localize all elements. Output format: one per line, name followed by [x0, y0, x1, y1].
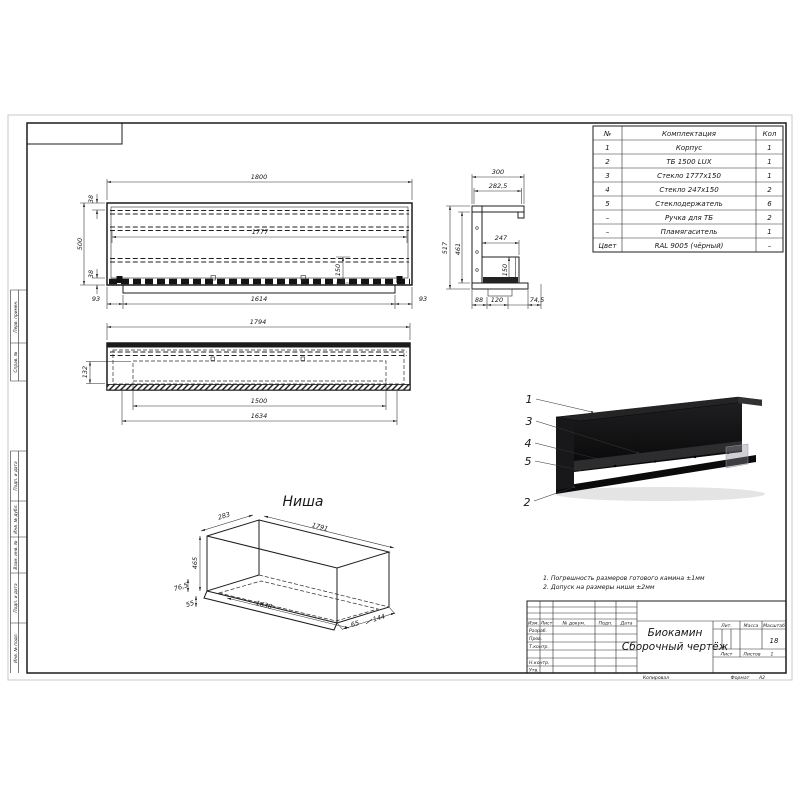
tb-col-list: Лист	[540, 621, 553, 627]
row8-qty: –	[768, 242, 772, 250]
note-1: 1. Погрешность размеров готового камина …	[543, 575, 705, 582]
parts-table-header-num: №	[603, 130, 611, 138]
tb-mass-label: Масса	[744, 623, 759, 629]
row7-name: Пламягаситель	[661, 228, 718, 236]
callout-2: 2	[524, 496, 531, 509]
engineering-drawing: Перв. примен. Справ. № Подп. и дата Инв.…	[0, 0, 800, 800]
dim-front-glass-height: 150	[334, 264, 342, 276]
dim-side-c: 74,5	[530, 296, 544, 304]
dim-front-inner-width: 1777	[252, 228, 269, 236]
row5-num: 5	[605, 200, 610, 208]
frame-label-vzam-inv: Взам. инв. №	[13, 540, 19, 570]
dim-side-inner-width: 282,5	[489, 182, 508, 190]
row2-num: 2	[605, 158, 610, 166]
row5-qty: 6	[767, 200, 772, 208]
tb-format-label: Формат	[731, 675, 750, 681]
row5-name: Стеклодержатель	[655, 200, 722, 208]
frame-label-sprav-no: Справ. №	[13, 351, 19, 372]
tb-col-izm: Изм.	[528, 621, 539, 627]
dim-top-depth: 132	[81, 366, 89, 378]
row2-qty: 1	[767, 158, 771, 166]
tb-sheet-label: Лист	[720, 652, 733, 658]
row7-qty: 1	[767, 228, 771, 236]
tb-scale-label: Масштаб	[763, 623, 785, 629]
dim-front-margin-right: 93	[419, 295, 427, 303]
tb-sheets-label: Листов	[742, 652, 760, 658]
dim-top-opening: 1634	[251, 412, 268, 420]
dim-front-total-height: 500	[76, 238, 84, 250]
dim-side-a: 88	[475, 296, 483, 304]
dim-front-bottom-flange: 38	[87, 270, 95, 278]
tb-row-nkontr: Н.контр.	[529, 660, 550, 666]
dim-front-margin-left: 93	[92, 295, 100, 303]
dim-side-b: 120	[491, 296, 503, 304]
tb-doc-title-2: Сборочный чертёж	[622, 641, 729, 653]
tb-lit-label: Лит.	[720, 623, 732, 629]
niche-title: Ниша	[282, 494, 323, 510]
dim-top-burner: 1500	[251, 397, 268, 405]
row8-name: RAL 9005 (чёрный)	[655, 242, 724, 250]
row3-num: 3	[605, 172, 609, 180]
note-2: 2. Допуск на размеры ниши ±2мм	[543, 584, 655, 591]
tb-doc-title-1: Биокамин	[648, 627, 703, 639]
dim-front-top-flange: 38	[87, 195, 95, 203]
tb-scale-value: 18	[770, 637, 779, 645]
dim-front-tray-length: 1614	[251, 295, 268, 303]
tb-sheets-value: 1	[771, 652, 774, 658]
row7-num: –	[606, 228, 610, 236]
tb-format-value: А2	[758, 675, 765, 681]
row3-name: Стекло 1777х150	[657, 172, 721, 180]
dim-side-width: 300	[492, 168, 504, 176]
row3-qty: 1	[767, 172, 771, 180]
row4-qty: 2	[767, 186, 772, 194]
row4-name: Стекло 247х150	[659, 186, 719, 194]
frame-label-inv-podl: Инв. № подл.	[13, 633, 19, 663]
row4-num: 4	[605, 186, 609, 194]
row1-num: 1	[605, 144, 609, 152]
row8-num: Цвет	[599, 242, 618, 250]
tb-copied-label: Копировал	[643, 675, 669, 681]
frame-label-perv-primen: Перв. примен.	[13, 300, 19, 332]
row6-num: –	[606, 214, 610, 222]
tb-col-data: Дата	[620, 621, 633, 627]
tb-row-utv: Утв.	[529, 668, 539, 674]
dim-front-total-width: 1800	[251, 173, 268, 181]
callout-3: 3	[526, 415, 533, 428]
tb-row-prov: Пров.	[529, 636, 542, 642]
frame-label-podp-data-2: Подп. и дата	[13, 583, 19, 613]
dim-niche-height: 465	[191, 557, 199, 569]
tb-row-razrab: Разраб.	[529, 628, 547, 634]
dim-side-inner-height: 461	[454, 243, 462, 255]
tb-row-tkontr: Т.контр.	[529, 644, 549, 650]
row6-qty: 2	[767, 214, 772, 222]
render-glass	[726, 444, 748, 468]
dim-top-length: 1794	[250, 318, 267, 326]
dim-side-height: 517	[441, 241, 449, 254]
callout-1: 1	[526, 393, 533, 406]
dim-side-opening: 247	[495, 234, 508, 242]
row1-qty: 1	[767, 144, 771, 152]
callout-4: 4	[525, 437, 532, 450]
row6-name: Ручка для ТБ	[665, 214, 713, 222]
tb-col-podp: Подп.	[599, 621, 613, 627]
parts-table-header-name: Комплектация	[662, 130, 716, 138]
frame-label-inv-dubl: Инв. № дубл.	[13, 504, 19, 533]
dim-side-burner-height: 150	[501, 264, 509, 276]
row2-name: ТБ 1500 LUX	[666, 158, 711, 166]
row1-name: Корпус	[676, 144, 702, 152]
frame-label-podp-data-1: Подп. и дата	[13, 461, 19, 491]
tb-col-doc: № докум.	[562, 621, 586, 627]
parts-table-header-qty: Кол	[763, 130, 777, 138]
callout-5: 5	[525, 455, 532, 468]
